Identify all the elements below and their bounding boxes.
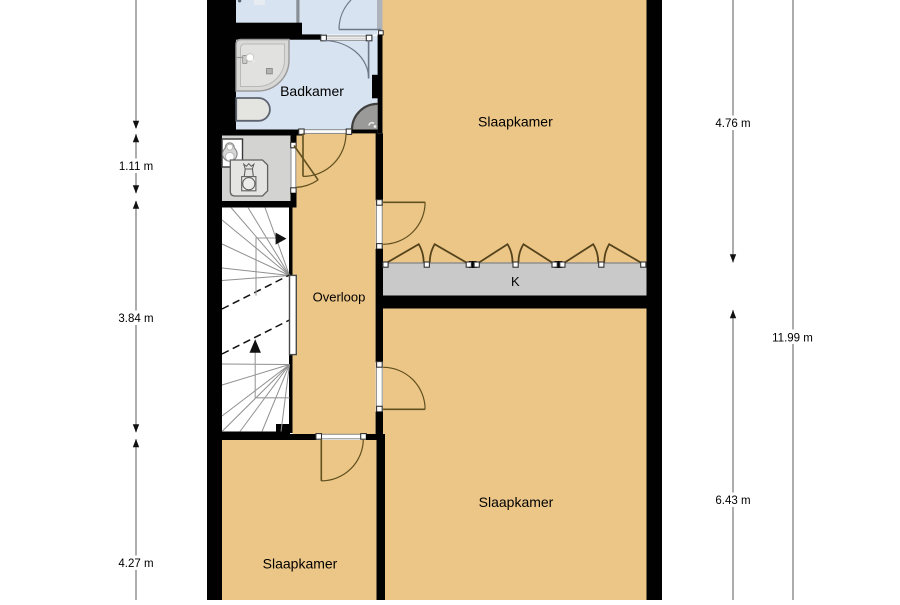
- svg-text:4.27 m: 4.27 m: [118, 558, 153, 570]
- svg-text:Badkamer: Badkamer: [280, 83, 344, 99]
- svg-text:Slaapkamer: Slaapkamer: [478, 114, 553, 130]
- svg-text:Slaapkamer: Slaapkamer: [479, 494, 554, 510]
- svg-text:6.43 m: 6.43 m: [715, 495, 750, 507]
- svg-text:Overloop: Overloop: [313, 290, 366, 305]
- svg-text:4.76 m: 4.76 m: [715, 118, 750, 130]
- svg-text:K: K: [511, 274, 520, 289]
- svg-text:Slaapkamer: Slaapkamer: [263, 556, 338, 572]
- svg-text:11.99 m: 11.99 m: [772, 333, 813, 345]
- svg-text:3.84 m: 3.84 m: [118, 313, 153, 325]
- svg-text:1.11 m: 1.11 m: [119, 161, 153, 173]
